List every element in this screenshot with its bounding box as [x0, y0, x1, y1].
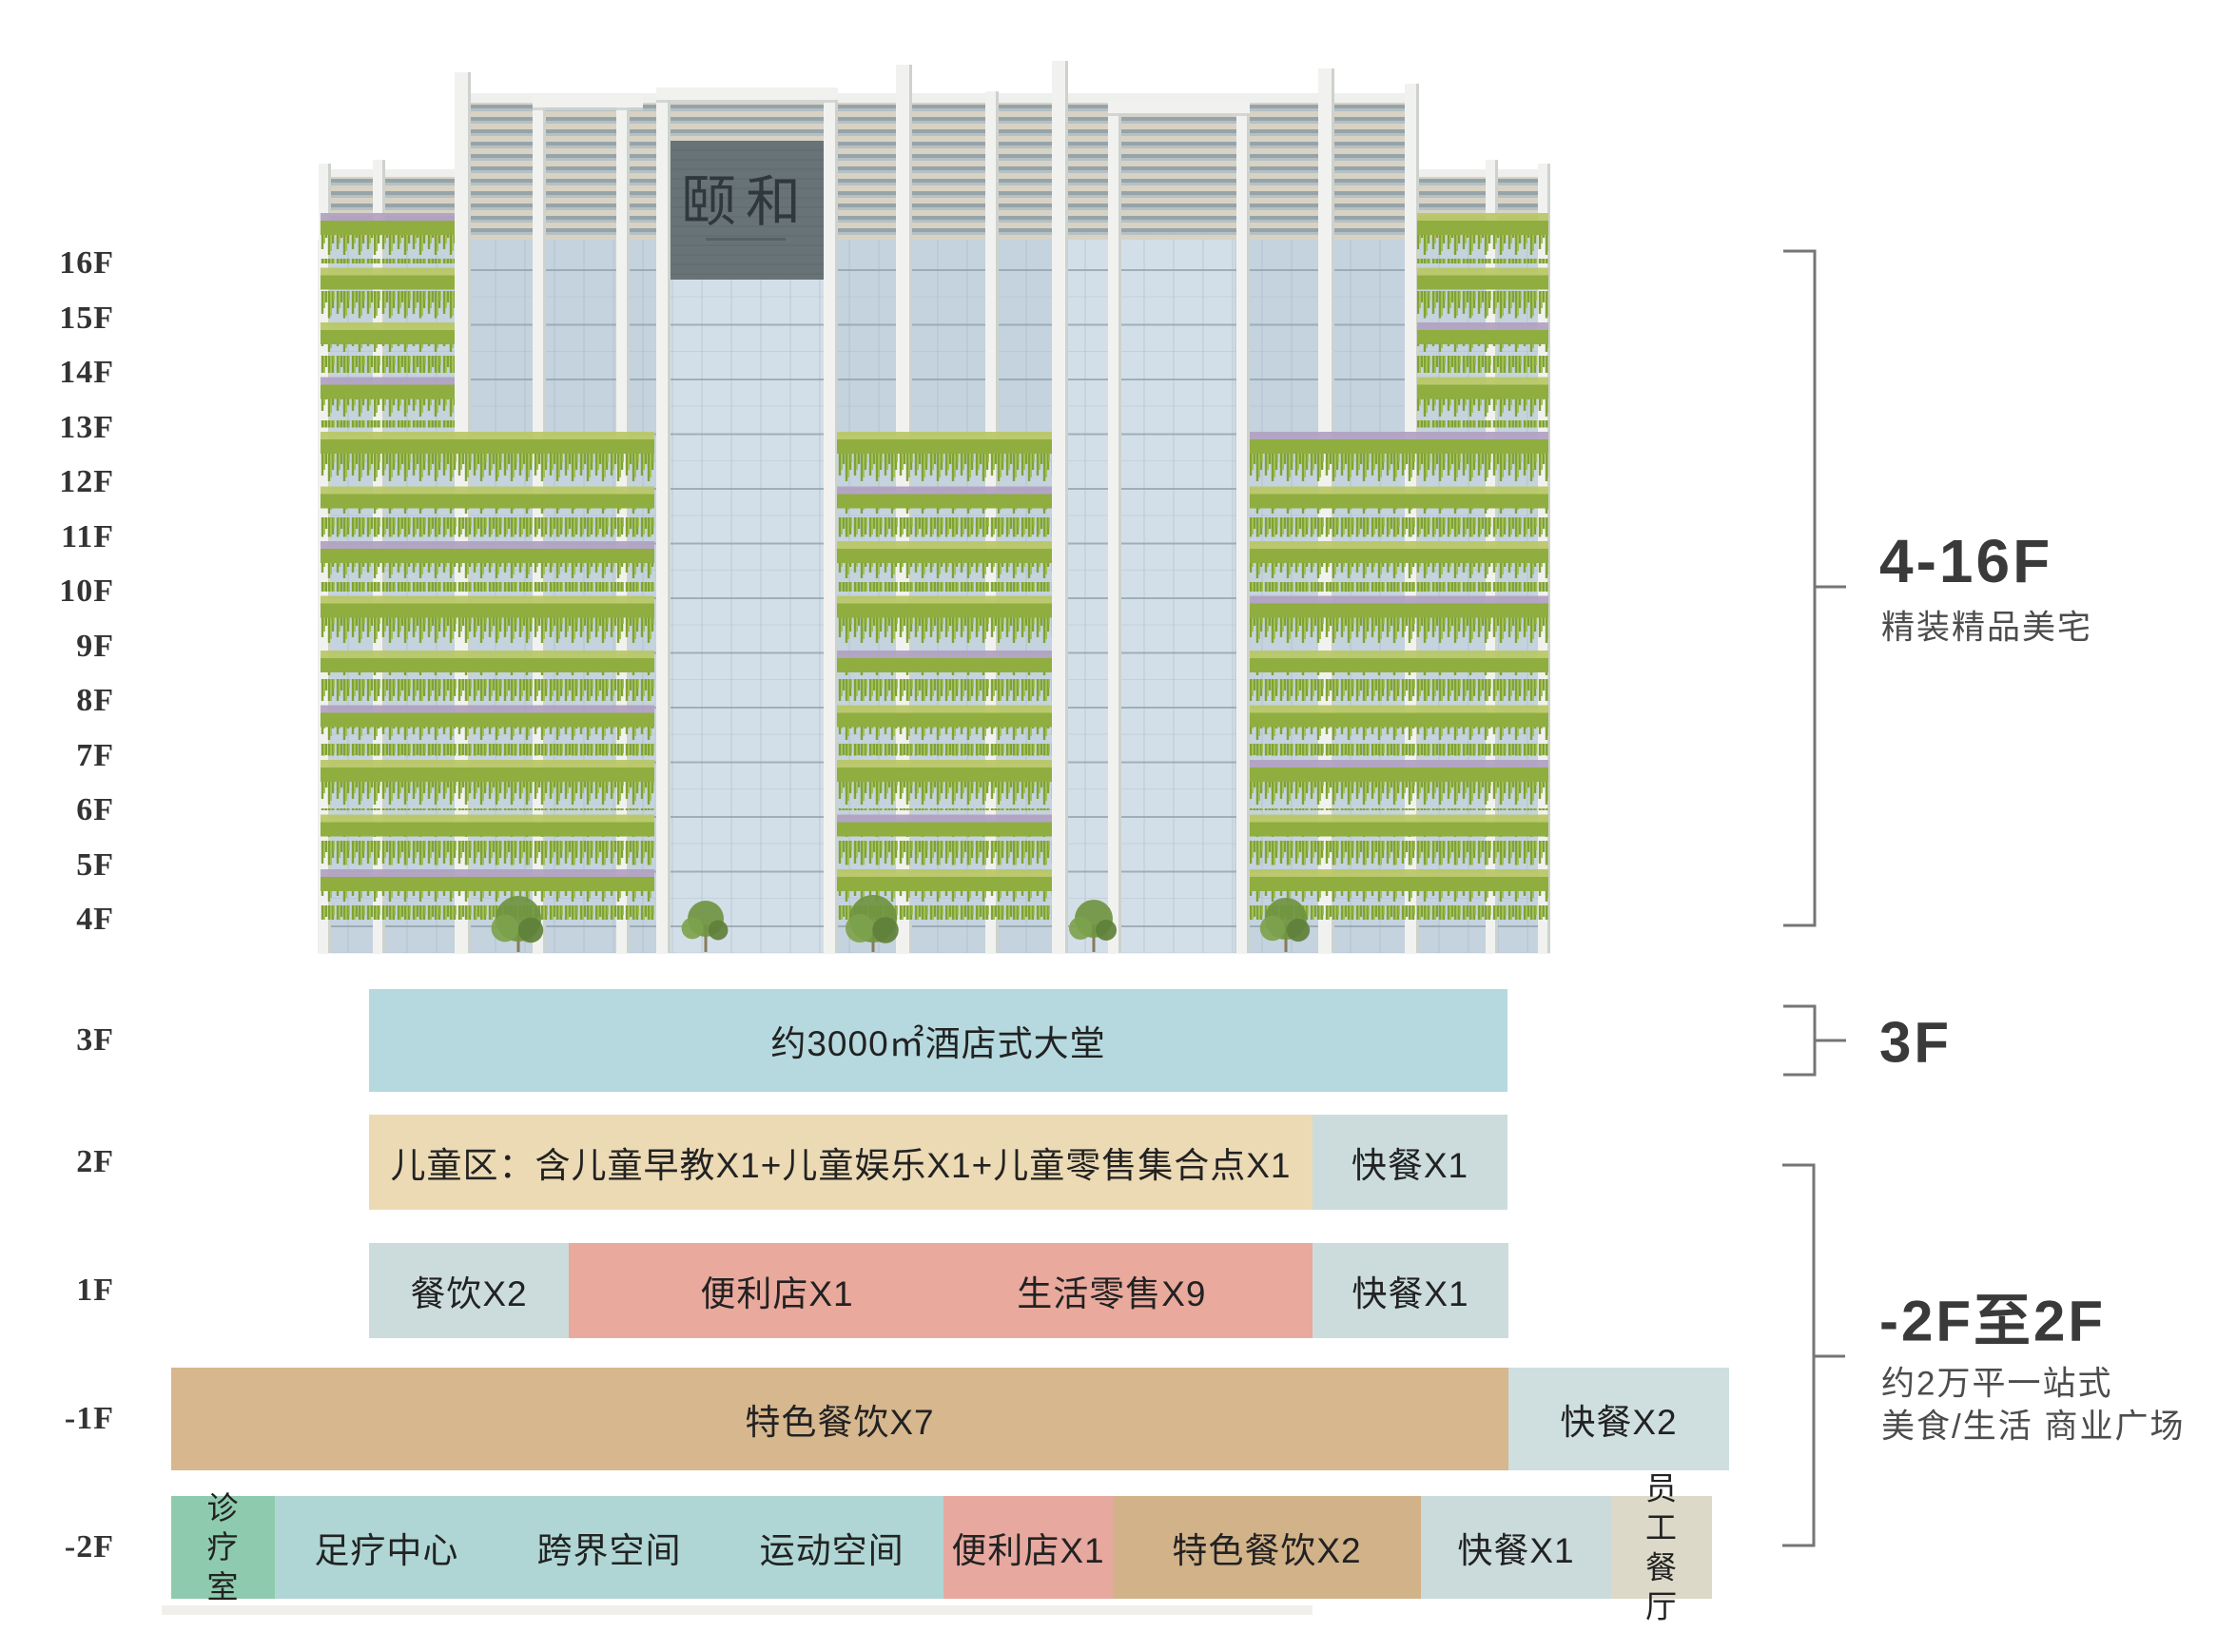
- annotation-subtitle-floors-4-16-0: 精装精品美宅: [1881, 601, 2092, 650]
- annotations: 4-16F精装精品美宅3F-2F至2F约2万平一站式美食/生活 商业广场: [0, 0, 2217, 1652]
- annotation-title-floor-3: 3F: [1879, 1010, 1952, 1076]
- annotation-subtitle-floors-neg2-to-2-0: 约2万平一站式: [1881, 1357, 2112, 1406]
- annotation-title-floors-neg2-to-2: -2F至2F: [1879, 1275, 2106, 1358]
- annotation-title-floors-4-16: 4-16F: [1879, 526, 2052, 596]
- stacking-diagram: 颐和 16F15F14F13F12F11F10F9F8F7F6F5F4F3F2F…: [0, 0, 2217, 1652]
- annotation-subtitle-floors-neg2-to-2-1: 美食/生活 商业广场: [1881, 1400, 2185, 1448]
